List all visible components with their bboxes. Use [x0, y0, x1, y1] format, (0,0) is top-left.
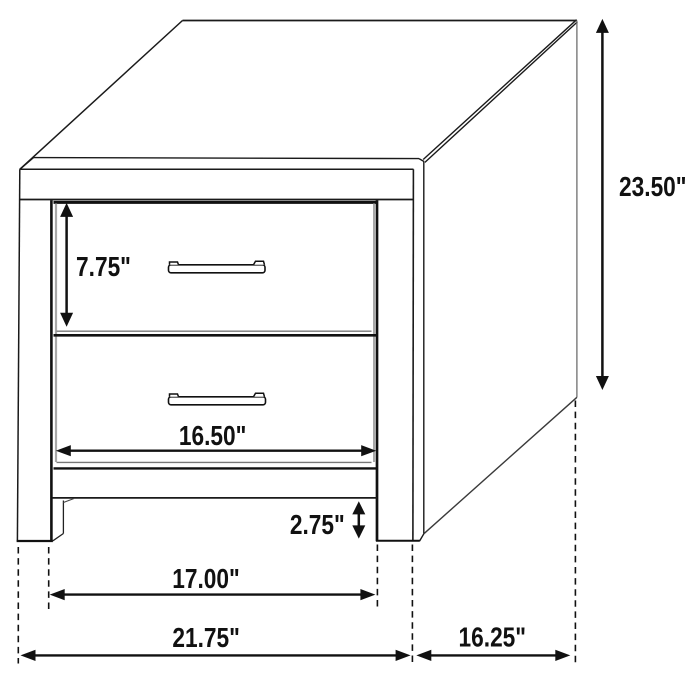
- svg-text:17.00": 17.00": [172, 564, 239, 595]
- svg-text:23.50": 23.50": [619, 172, 686, 203]
- svg-text:16.25": 16.25": [459, 622, 526, 653]
- svg-text:21.75": 21.75": [172, 623, 239, 654]
- svg-text:2.75": 2.75": [290, 510, 345, 541]
- svg-text:16.50": 16.50": [179, 421, 246, 452]
- svg-text:7.75": 7.75": [76, 252, 131, 283]
